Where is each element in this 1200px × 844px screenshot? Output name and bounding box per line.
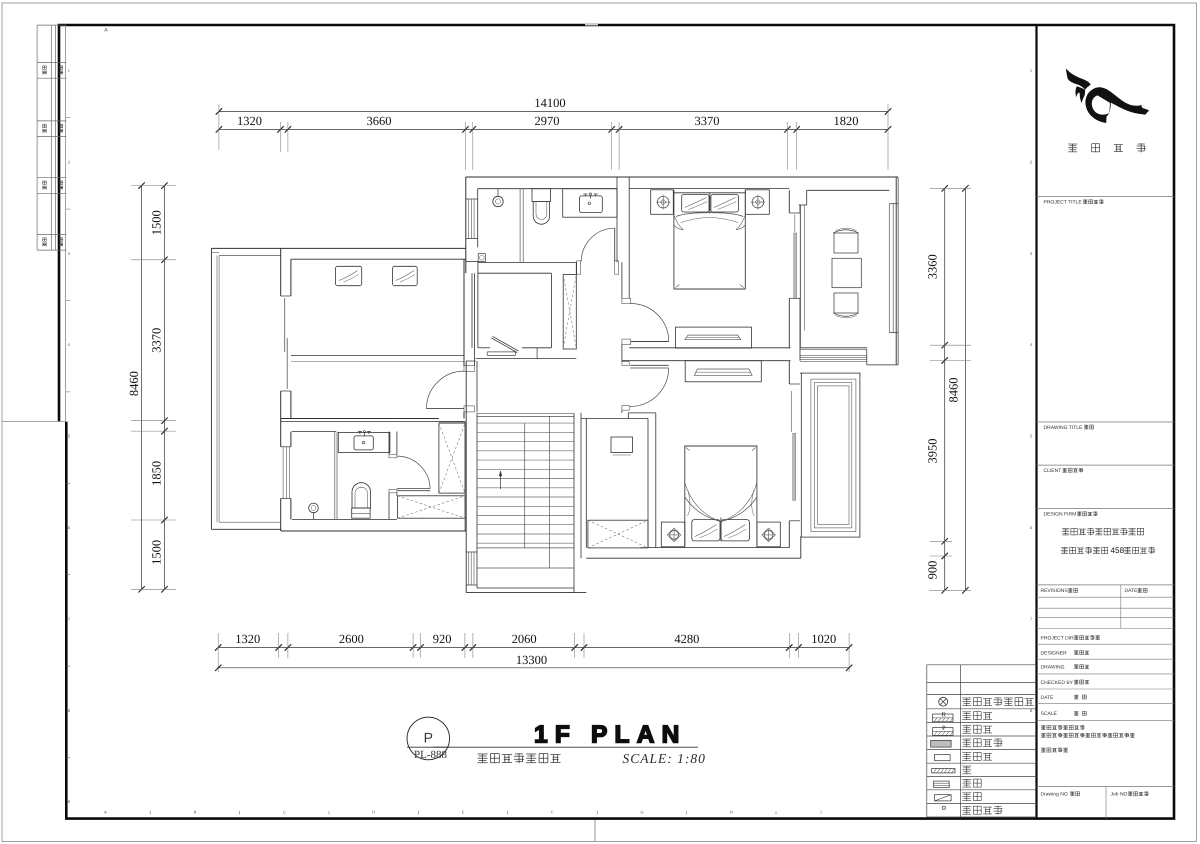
svg-text:G: G [640,810,643,815]
svg-text:D: D [372,810,375,815]
svg-text:1F PLAN: 1F PLAN [534,722,687,749]
svg-text:3360: 3360 [925,254,939,279]
svg-text:4280: 4280 [674,632,699,646]
svg-text:1320: 1320 [237,114,262,128]
svg-text:3370: 3370 [695,114,720,128]
svg-text:1320: 1320 [235,632,260,646]
svg-text:1020: 1020 [811,632,836,646]
svg-text:DATE: DATE [1041,695,1055,701]
svg-text:DESIGN FIRM: DESIGN FIRM [1044,512,1077,518]
svg-text:920: 920 [433,632,452,646]
svg-text:P: P [942,725,946,732]
svg-text:1820: 1820 [834,114,859,128]
svg-text:DESIGNER: DESIGNER [1041,650,1068,656]
svg-text:1500: 1500 [150,210,164,235]
svg-text:PROJECT TITLE: PROJECT TITLE [1044,200,1083,206]
svg-text:SCALE: 1:80: SCALE: 1:80 [623,751,706,766]
svg-text:R: R [942,711,947,718]
svg-text:CHECKED BY: CHECKED BY [1041,680,1074,686]
svg-text:P: P [424,730,433,746]
svg-text:SCALE: SCALE [1041,711,1058,717]
svg-text:CLIENT: CLIENT [1044,468,1062,474]
svg-text:J: J [820,810,822,815]
svg-text:3950: 3950 [925,439,939,464]
svg-text:Drawing NO: Drawing NO [1041,792,1068,798]
svg-text:C: C [283,810,286,815]
svg-text:14100: 14100 [534,96,565,110]
svg-text:1850: 1850 [150,461,164,486]
svg-text:A: A [104,810,107,815]
svg-text:PL-888: PL-888 [414,749,448,761]
svg-text:458: 458 [1111,546,1125,555]
svg-text:2060: 2060 [512,632,537,646]
svg-text:900: 900 [925,561,939,580]
svg-text:3660: 3660 [367,114,392,128]
svg-text:DATE: DATE [1125,588,1139,594]
svg-text:B: B [194,810,197,815]
svg-text:H: H [730,810,733,815]
svg-text:8460: 8460 [127,371,141,396]
svg-text:8460: 8460 [946,378,960,403]
svg-text:3370: 3370 [150,328,164,353]
svg-text:13300: 13300 [516,653,547,667]
svg-text:Job NO: Job NO [1111,792,1128,798]
svg-text:DRAWING TITLE: DRAWING TITLE [1044,425,1084,431]
svg-text:1500: 1500 [150,540,164,565]
svg-text:PROJECT DIR: PROJECT DIR [1041,635,1075,641]
svg-text:DRAWING: DRAWING [1041,665,1065,671]
svg-text:2970: 2970 [535,114,560,128]
svg-text:REVISIONS: REVISIONS [1041,588,1069,594]
svg-text:E: E [462,810,465,815]
svg-text:2600: 2600 [339,632,364,646]
